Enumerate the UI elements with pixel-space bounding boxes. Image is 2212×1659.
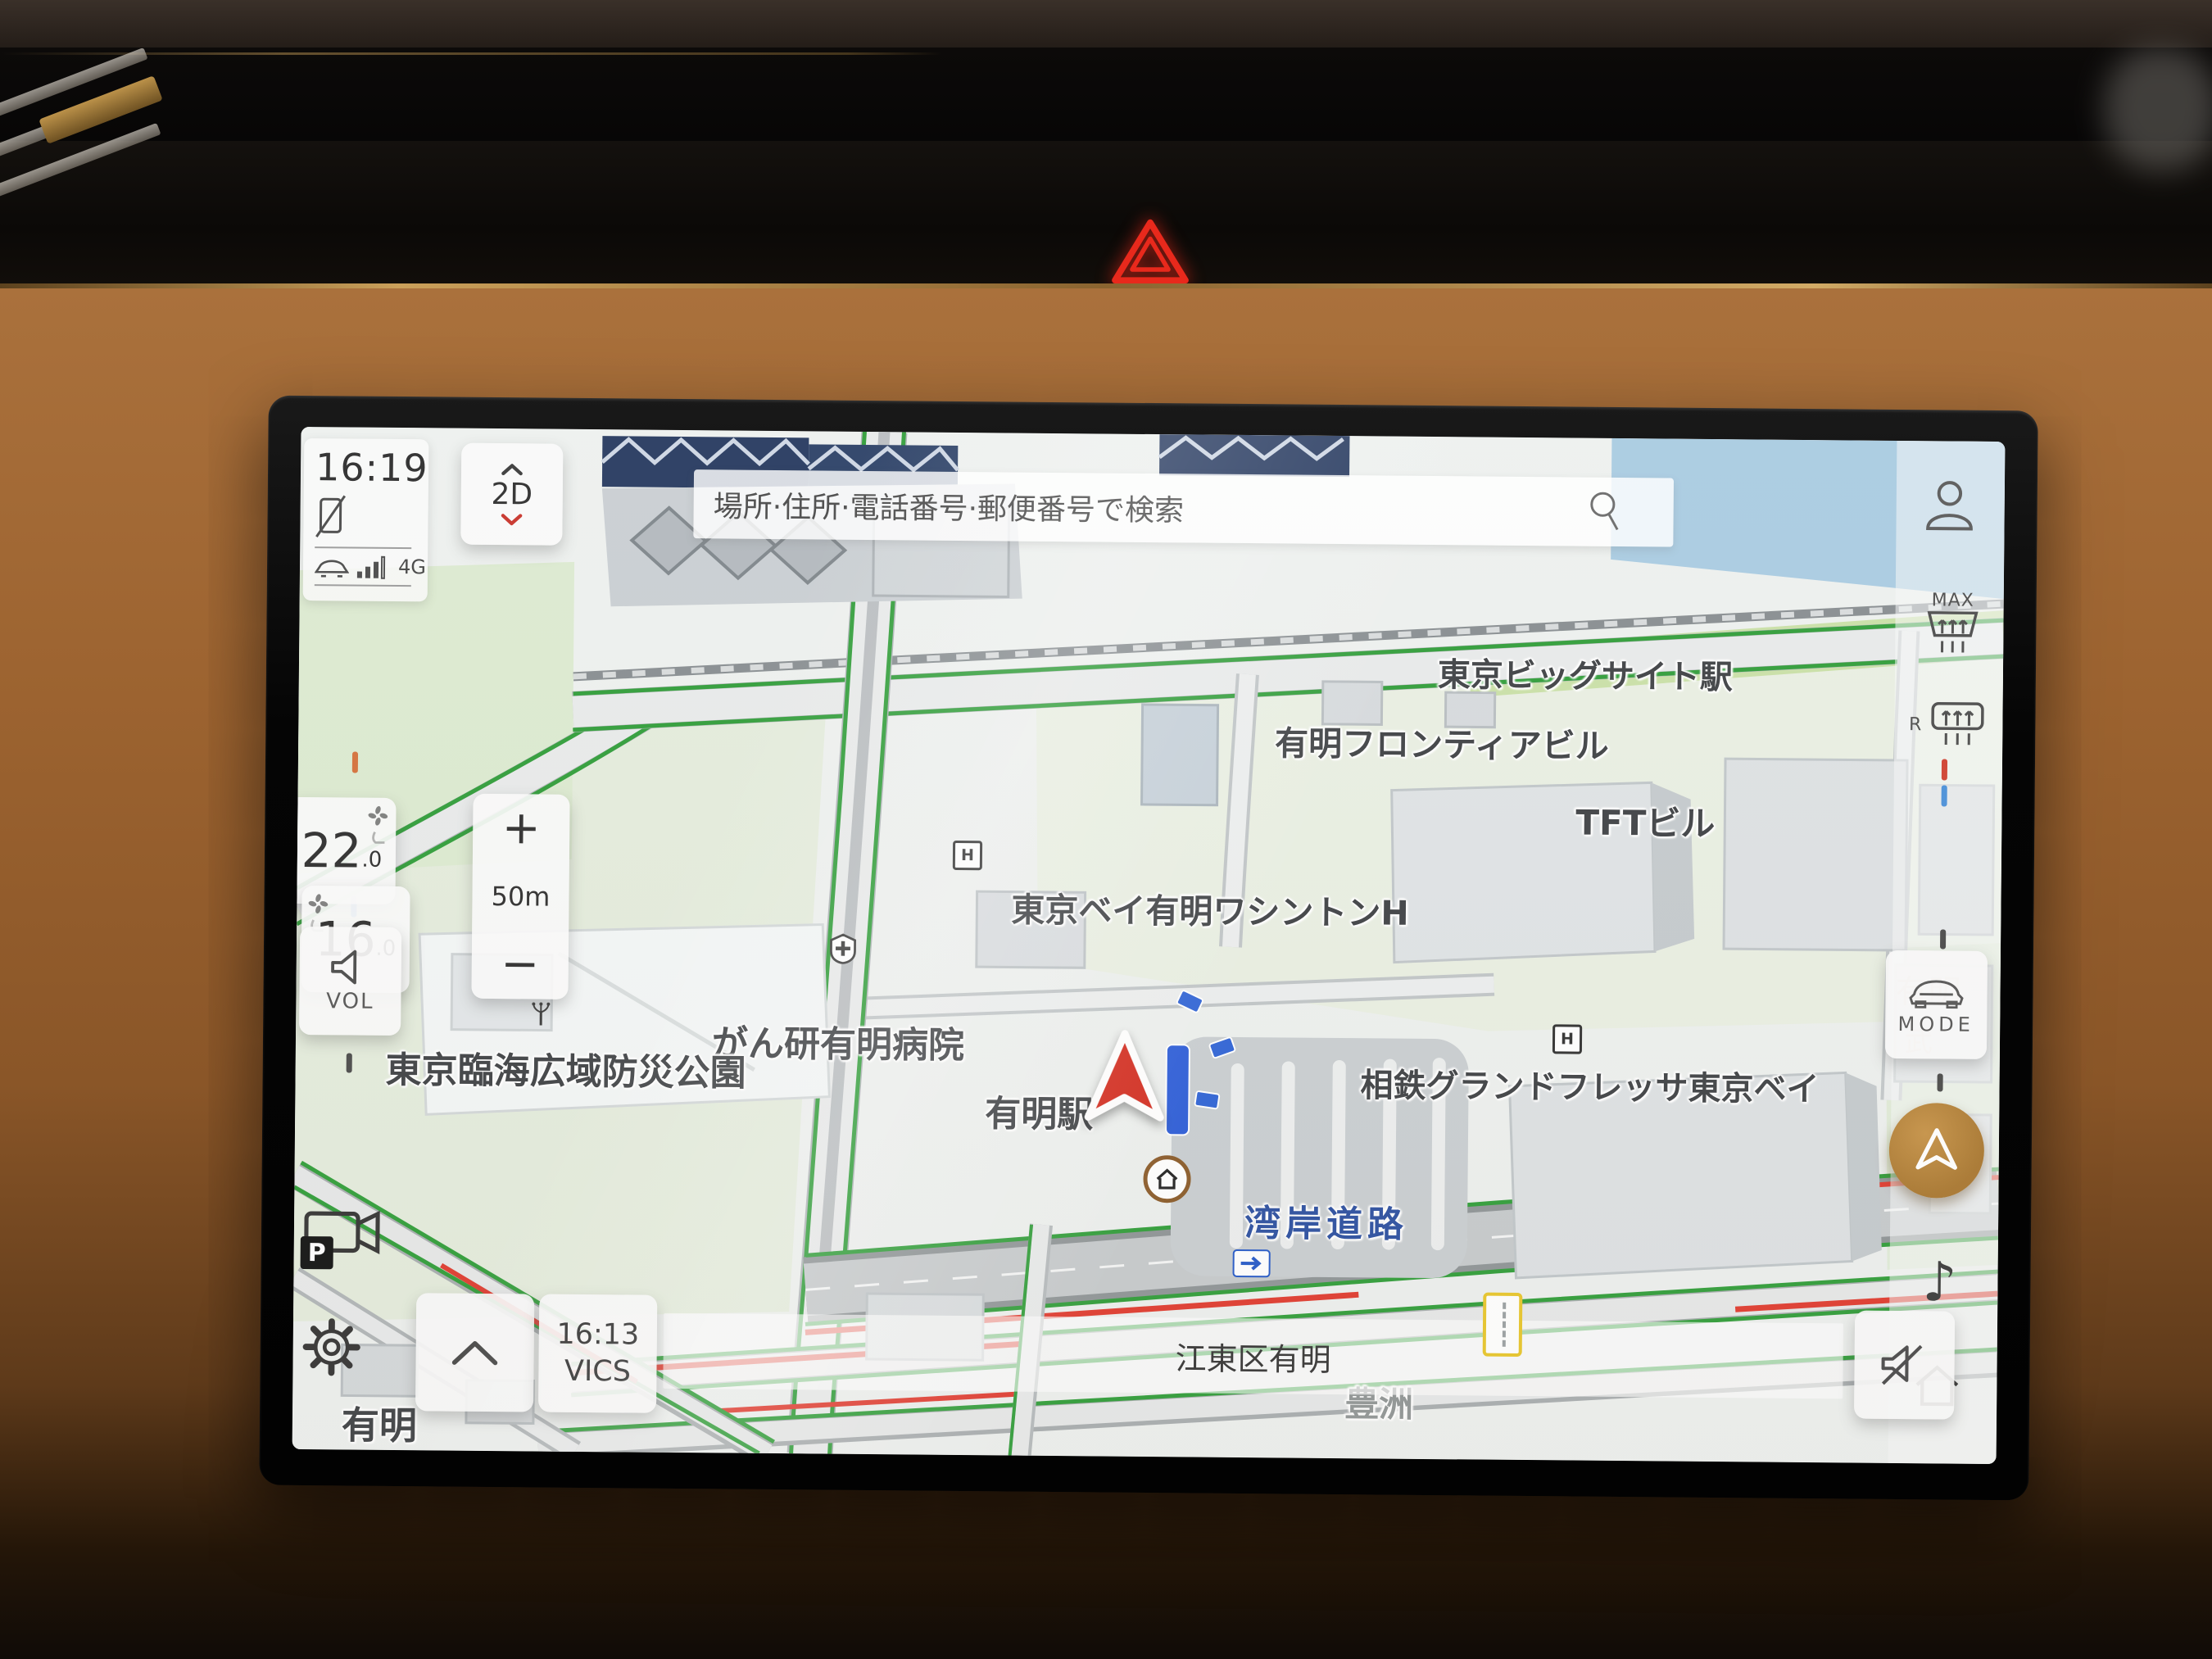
dashboard-top	[0, 0, 2212, 48]
defrost-rear-button[interactable]: R	[1909, 701, 1987, 748]
windshield-defrost-icon	[1921, 610, 1984, 659]
expand-menu-button[interactable]	[415, 1293, 534, 1412]
map-label-washington-hotel: 東京ベイ有明ワシントンH	[1011, 882, 1409, 935]
nav-arrow-icon	[1910, 1123, 1965, 1178]
volume-label: VOL	[326, 989, 374, 1014]
signal-bars-icon	[356, 554, 392, 580]
volume-button[interactable]: VOL	[299, 927, 401, 1036]
map-view-2d-toggle[interactable]: 2D	[460, 443, 563, 546]
map-label-ariake-station: 有明駅	[985, 1084, 1094, 1137]
mute-button[interactable]	[1854, 1311, 1955, 1420]
status-cluster: 16:19 4G	[303, 438, 429, 601]
music-note-icon: ♪	[1922, 1250, 1957, 1313]
navigation-app-button[interactable]	[1888, 1103, 1984, 1199]
search-icon[interactable]	[1586, 491, 1624, 533]
map-label-tft-building: TFTビル	[1575, 796, 1716, 846]
vics-label: VICS	[564, 1353, 631, 1391]
media-button[interactable]: ♪	[1922, 1250, 1957, 1313]
lane-info-icon	[1483, 1293, 1523, 1357]
background-blur	[2104, 48, 2212, 170]
vics-traffic-panel[interactable]: 16:13 VICS	[538, 1294, 657, 1413]
map-label-ganken-hospital: がん研有明病院	[712, 1013, 965, 1068]
parked-car-icon	[1194, 1090, 1221, 1110]
rear-defrost-icon	[1929, 701, 1986, 748]
home-poi-icon	[1143, 1155, 1191, 1203]
hotel-marker-icon: H	[953, 841, 982, 870]
current-location-bar: 江東区有明	[663, 1313, 1843, 1399]
car-connectivity-icon	[315, 554, 349, 578]
road-marker-blue	[1165, 1044, 1190, 1135]
hospital-icon	[829, 933, 857, 968]
chevron-up-icon	[500, 463, 524, 476]
hazard-triangle-icon	[1109, 217, 1191, 288]
defrost-front-label: MAX	[1932, 590, 1974, 610]
search-bar[interactable]: 場所·住所·電話番号·郵便番号で検索	[693, 469, 1674, 546]
infotainment-display[interactable]: 東京ビッグサイト駅 有明フロンティアビル TFTビル 東京ベイ有明ワシントンH …	[292, 427, 2006, 1464]
vics-time: 16:13	[556, 1316, 639, 1353]
profile-button[interactable]	[1922, 477, 1977, 532]
infotainment-screen-bezel: 東京ビッグサイト駅 有明フロンティアビル TFTビル 東京ベイ有明ワシントンH …	[259, 396, 2038, 1501]
map-view-label: 2D	[491, 477, 533, 510]
passenger-temp-value: 22	[301, 823, 361, 879]
map-label-sotetsu-hotel: 相鉄グランドフレッサ東京ベイ	[1360, 1058, 1819, 1110]
chevron-up-icon	[449, 1338, 501, 1368]
vehicle-position-arrow	[1083, 1028, 1166, 1131]
mode-label: MODE	[1897, 1013, 1974, 1036]
map-label-rinkai-park: 東京臨海広域防災公園	[385, 1040, 746, 1096]
hazard-light-button[interactable]	[1108, 215, 1193, 290]
map-label-big-sight-station: 東京ビッグサイト駅	[1438, 648, 1733, 698]
road-direction-arrow-icon	[1232, 1249, 1270, 1277]
dashboard-black-band	[0, 48, 2212, 141]
fan-icon	[368, 806, 388, 826]
fountain-icon	[530, 1002, 551, 1030]
hotel-marker-icon: H	[1552, 1024, 1582, 1054]
fan-icon	[308, 894, 328, 913]
person-icon	[1922, 477, 1977, 532]
map-label-wangan-road: 湾岸道路	[1244, 1194, 1409, 1248]
seat-heat-icon	[369, 831, 388, 849]
parking-camera-button[interactable]: P	[304, 1203, 383, 1267]
clock: 16:19	[315, 445, 428, 490]
network-type: 4G	[398, 555, 426, 578]
defrost-front-button[interactable]: MAX	[1921, 590, 1984, 659]
map-zoom-panel[interactable]: + 50m −	[471, 794, 569, 999]
dashboard-vent-band	[0, 141, 2212, 288]
map-label-ariake-frontier: 有明フロンティアビル	[1275, 715, 1609, 768]
car-mode-icon	[1906, 973, 1965, 1010]
current-location-text: 江東区有明	[1175, 1333, 1330, 1380]
passenger-temp-decimal: .0	[361, 848, 382, 873]
zoom-in-button[interactable]: +	[502, 805, 541, 851]
defrost-rear-label: R	[1909, 714, 1923, 735]
mode-button[interactable]: MODE	[1885, 950, 1988, 1059]
gear-icon	[299, 1315, 364, 1380]
map-scale-label: 50m	[491, 881, 550, 913]
settings-button[interactable]	[299, 1315, 364, 1383]
speaker-icon	[329, 948, 372, 986]
chevron-down-red-icon	[499, 513, 524, 526]
search-placeholder: 場所·住所·電話番号·郵便番号で検索	[713, 483, 1586, 533]
parking-badge: P	[301, 1236, 333, 1269]
zoom-out-button[interactable]: −	[501, 941, 539, 987]
phone-disconnected-icon	[315, 494, 347, 538]
map-label-ariake-bottom: 有明	[342, 1395, 418, 1450]
speaker-muted-icon	[1880, 1344, 1928, 1387]
